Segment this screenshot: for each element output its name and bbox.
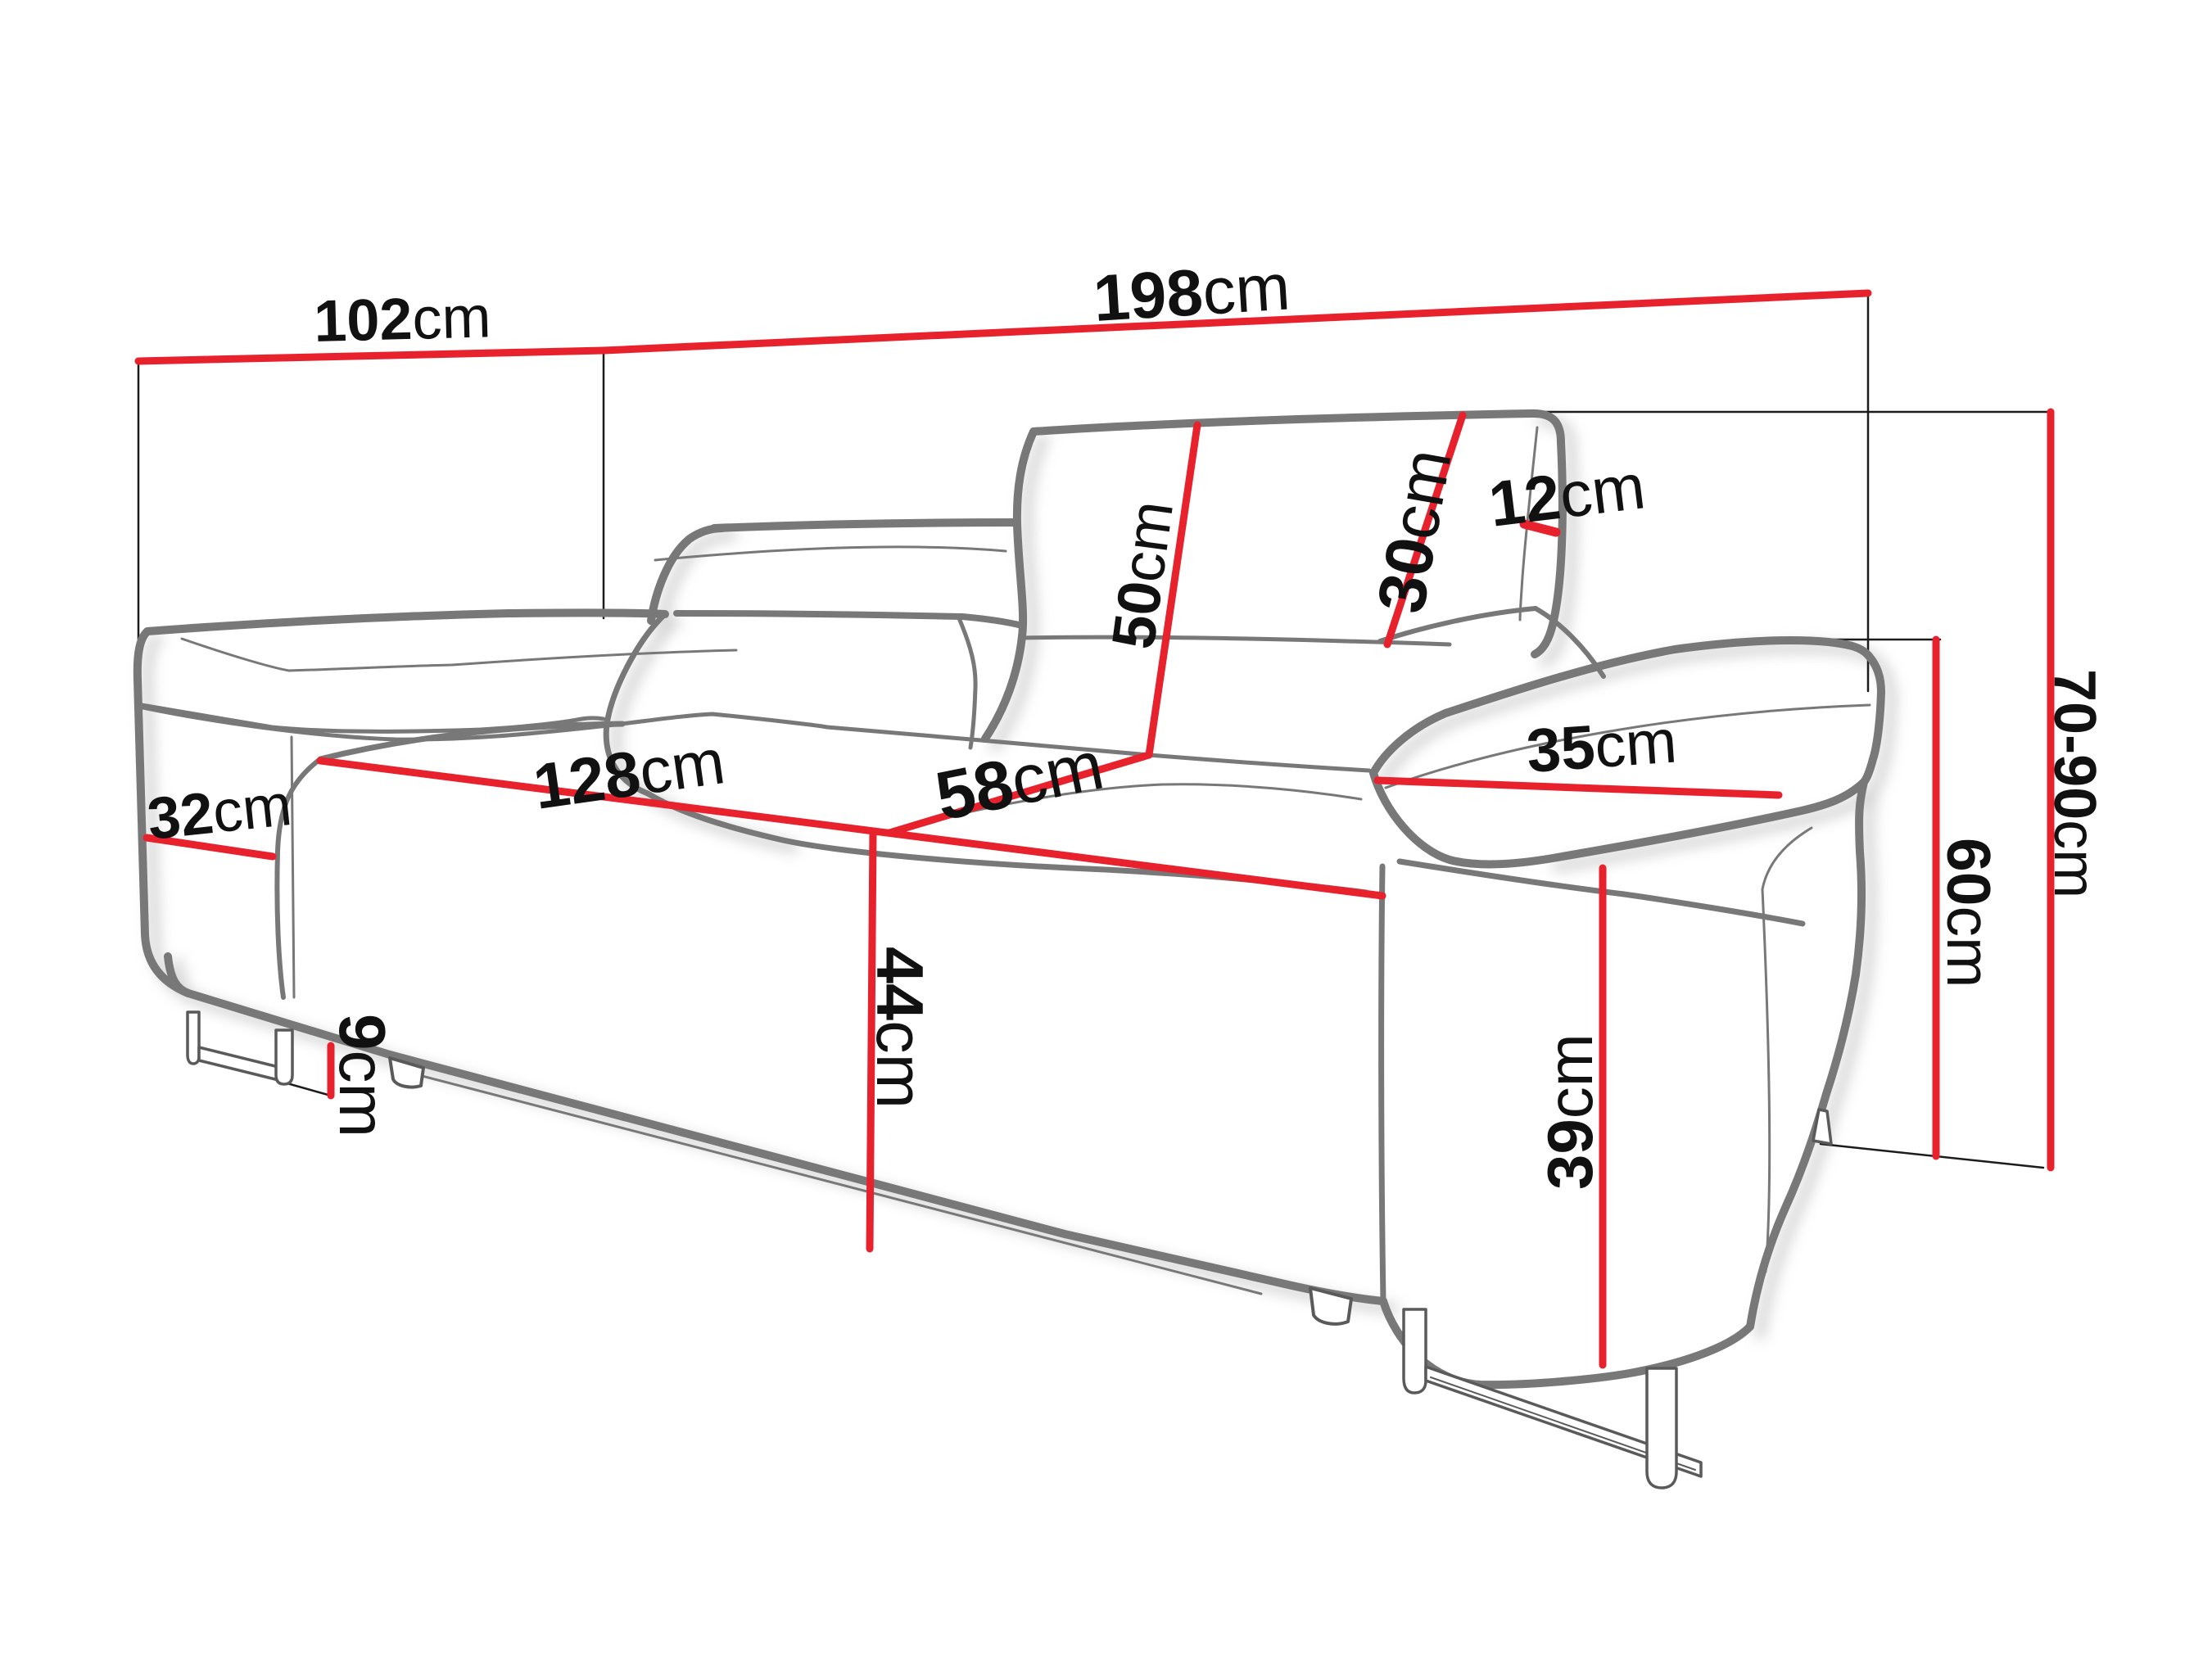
svg-text:12cm: 12cm xyxy=(1485,450,1649,540)
svg-text:35cm: 35cm xyxy=(1524,706,1679,785)
svg-text:9cm: 9cm xyxy=(326,1014,399,1137)
svg-text:30cm: 30cm xyxy=(1364,444,1465,618)
svg-text:60cm: 60cm xyxy=(1934,838,2003,988)
svg-text:44cm: 44cm xyxy=(862,947,936,1109)
svg-text:102cm: 102cm xyxy=(313,284,491,355)
svg-text:50cm: 50cm xyxy=(1099,497,1186,653)
svg-text:39cm: 39cm xyxy=(1534,1033,1606,1190)
svg-text:198cm: 198cm xyxy=(1092,250,1292,334)
svg-text:70-90cm: 70-90cm xyxy=(2042,669,2107,898)
svg-text:58cm: 58cm xyxy=(930,726,1110,835)
svg-text:32cm: 32cm xyxy=(144,772,294,852)
